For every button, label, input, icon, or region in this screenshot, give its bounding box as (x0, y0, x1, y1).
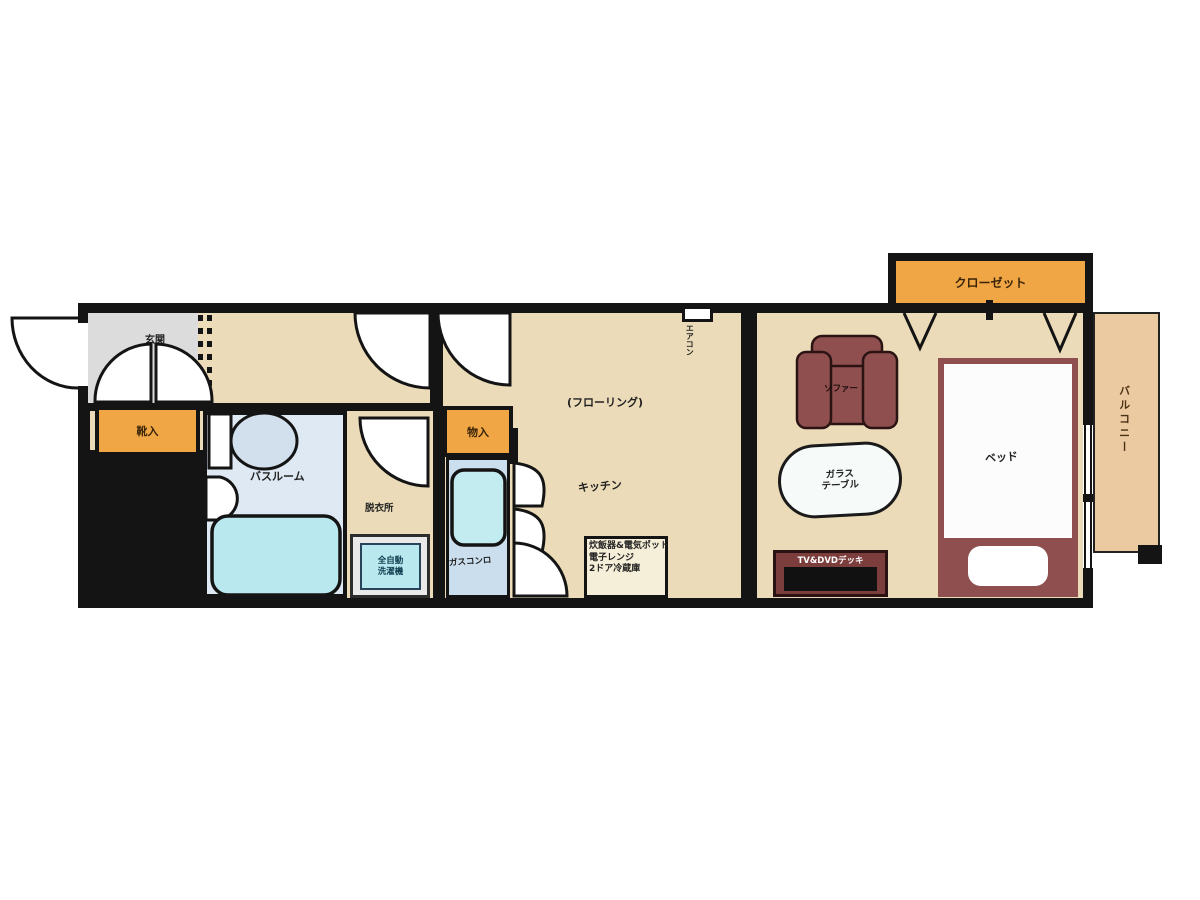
balcony-notch (1138, 545, 1162, 564)
sofa-label: ソファー (824, 385, 858, 395)
black-void-area (80, 450, 203, 608)
washing-machine-drum: 全自動 洗濯機 (360, 543, 421, 590)
glass-table-label-line2: テーブル (821, 479, 859, 492)
changing-room-label: 脱衣所 (365, 504, 394, 515)
bed-label: ベッド (985, 451, 1019, 466)
bathroom-label: バスルーム (250, 471, 305, 484)
entrance-label: 玄関 (145, 335, 165, 347)
storage-box: 物入 (443, 406, 513, 457)
floor-plan: クローゼット バルコニー 玄関 靴入 物入 バスルーム ガスコンロ 全自動 洗濯… (0, 0, 1200, 900)
flooring-label: (フローリング) (567, 397, 643, 410)
washer-label-line2: 洗濯機 (378, 567, 404, 577)
wall-right-upper (1083, 303, 1093, 425)
appliance-label-line3: 2ドア冷蔵庫 (589, 564, 669, 576)
tv-screen (784, 567, 877, 591)
air-conditioner-label: エアコン (685, 324, 694, 356)
entrance-boundary-dots-2 (207, 315, 212, 403)
entrance-floor (88, 313, 198, 403)
wall-right-lower (1083, 568, 1093, 608)
shoe-cabinet: 靴入 (95, 406, 200, 456)
appliance-label-line1: 炊飯器&電気ポット (589, 541, 669, 553)
appliance-labels: 炊飯器&電気ポット 電子レンジ 2ドア冷蔵庫 (589, 541, 669, 576)
bed-pillow (968, 546, 1048, 586)
shoe-cabinet-label: 靴入 (137, 423, 159, 439)
balcony-label: バルコニー (1117, 385, 1130, 455)
wall-top (78, 303, 1093, 313)
wall-room-divider (741, 303, 757, 608)
wall-bottom (78, 598, 1093, 608)
stove-area (446, 457, 510, 598)
balcony-window-mid-tick (1083, 494, 1093, 502)
wall-hall-vertical (430, 303, 443, 407)
storage-label: 物入 (467, 424, 489, 440)
tv-dvd-label: TV&DVDデッキ (776, 554, 885, 566)
washer-label-line1: 全自動 (378, 556, 404, 566)
bathroom (203, 411, 347, 598)
air-conditioner-unit (682, 306, 713, 322)
closet-label: クローゼット (954, 274, 1026, 291)
front-door-swing-icon (12, 318, 78, 388)
appliance-label-line2: 電子レンジ (589, 553, 669, 565)
tv-dvd-deck: TV&DVDデッキ (773, 550, 888, 597)
glass-table: ガラス テーブル (776, 440, 904, 520)
entrance-boundary-dots-1 (198, 315, 203, 403)
